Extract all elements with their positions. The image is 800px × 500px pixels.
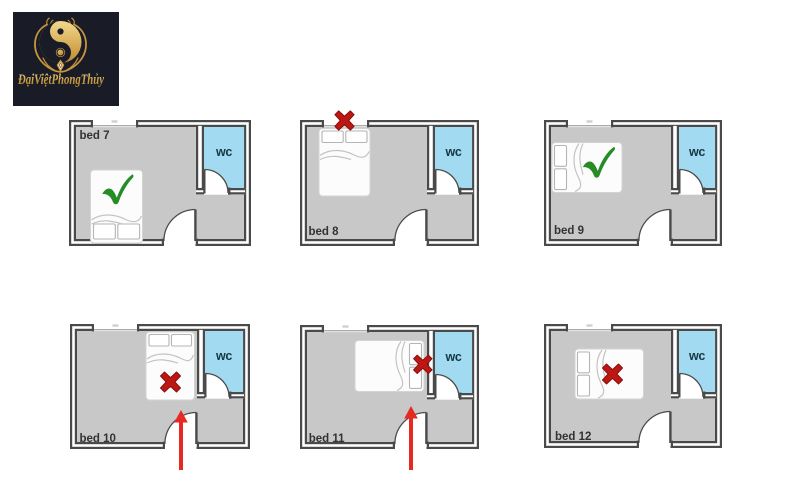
svg-text:wc: wc — [444, 350, 461, 364]
svg-text:bed 9: bed 9 — [554, 225, 584, 237]
svg-text:wc: wc — [688, 145, 705, 159]
svg-text:bed 11: bed 11 — [309, 433, 345, 445]
svg-text:bed 8: bed 8 — [309, 226, 340, 238]
svg-text:wc: wc — [444, 145, 461, 159]
svg-text:wc: wc — [215, 349, 232, 363]
svg-text:bed 12: bed 12 — [555, 431, 591, 443]
svg-text:bed 7: bed 7 — [80, 130, 110, 142]
svg-text:wc: wc — [688, 349, 705, 363]
svg-text:ĐạiViệtPhongThủy: ĐạiViệtPhongThủy — [17, 72, 104, 88]
svg-text:bed 10: bed 10 — [80, 433, 116, 445]
svg-text:wc: wc — [215, 145, 232, 159]
